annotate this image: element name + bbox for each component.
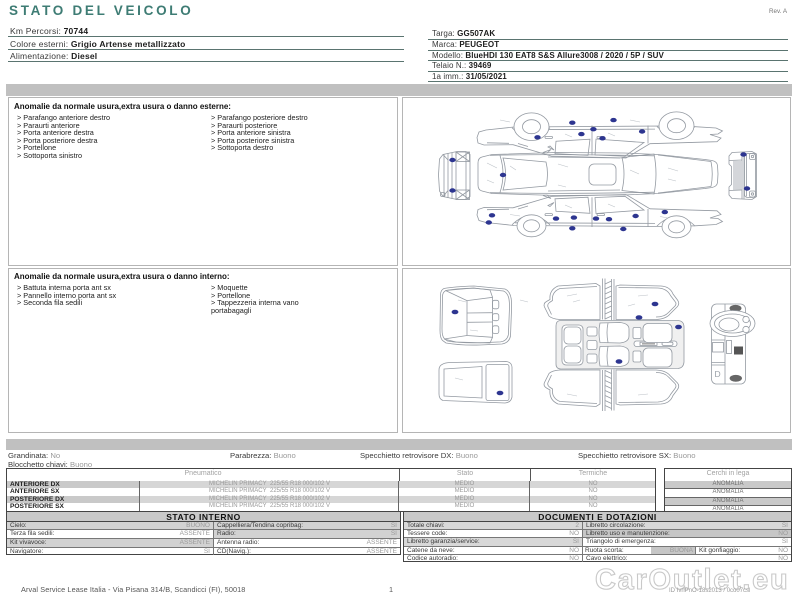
svg-text:D: D <box>715 369 721 379</box>
